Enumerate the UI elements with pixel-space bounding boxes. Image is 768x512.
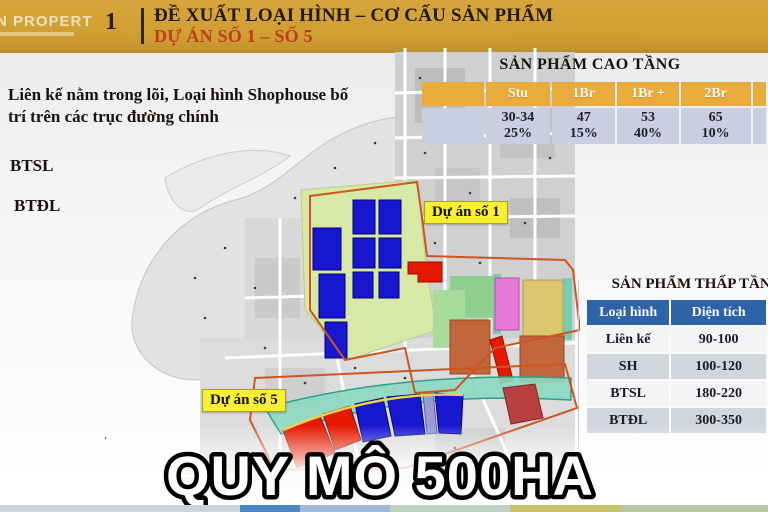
high-rise-cell-empty	[422, 108, 484, 144]
scale-caption-text: QUY MÔ 500HA	[166, 444, 594, 507]
low-rise-header-row: Loại hình Diện tích	[587, 300, 766, 325]
sliver-segment	[510, 505, 620, 512]
high-rise-data-row: 30-34 25% 47 15% 53 40% 65 10%	[422, 108, 766, 144]
section-number: 1	[96, 9, 126, 36]
low-rise-table: Loại hình Diện tích Liên kế 90-100 SH 10…	[585, 298, 768, 435]
1brplus-ratio: 40%	[618, 126, 677, 142]
note-btdl: BTĐL	[14, 196, 60, 216]
slide-title: ĐỀ XUẤT LOẠI HÌNH – CƠ CẤU SẢN PHẨM	[154, 5, 553, 26]
high-rise-table-title: SẢN PHẨM CAO TẦNG	[420, 56, 760, 74]
1brplus-area: 53	[618, 110, 677, 126]
high-rise-col-2br: 2Br	[681, 82, 751, 106]
sliver-segment	[300, 505, 390, 512]
low-rise-col-type: Loại hình	[587, 300, 669, 325]
logo-text: N PROPERTY	[0, 13, 92, 30]
high-rise-table: Stu 1Br 1Br + 2Br 30-34 25% 47 15% 53 40…	[420, 80, 768, 146]
scale-caption: QUY MÔ 500HA	[130, 440, 630, 510]
high-rise-col-1br: 1Br	[552, 82, 615, 106]
sliver-segment	[240, 505, 300, 512]
label-project-1: Dự án số 1	[424, 201, 508, 224]
high-rise-header-row: Stu 1Br 1Br + 2Br	[422, 82, 766, 106]
low-rise-table-title: SẢN PHẨM THẤP TẦNG	[585, 276, 768, 293]
high-rise-col-cut	[753, 82, 766, 106]
btsl-type: BTSL	[587, 381, 669, 406]
high-rise-cell-1br: 47 15%	[552, 108, 615, 144]
sliver-segment	[390, 505, 510, 512]
note-btsl: BTSL	[10, 156, 53, 176]
header-divider	[141, 8, 144, 44]
1br-area: 47	[553, 110, 614, 126]
1br-ratio: 15%	[553, 126, 614, 142]
sliver-segment	[0, 505, 240, 512]
lienke-type: Liên kế	[587, 327, 669, 352]
low-rise-col-area: Diện tích	[671, 300, 766, 325]
sh-area: 100-120	[671, 354, 766, 379]
lienke-area: 90-100	[671, 327, 766, 352]
2br-area: 65	[682, 110, 750, 126]
high-rise-cell-stu: 30-34 25%	[486, 108, 550, 144]
high-rise-cell-2br: 65 10%	[681, 108, 751, 144]
header-titles: ĐỀ XUẤT LOẠI HÌNH – CƠ CẤU SẢN PHẨM DỰ Á…	[154, 5, 553, 46]
low-rise-row-btsl: BTSL 180-220	[587, 381, 766, 406]
high-rise-col-empty	[422, 82, 484, 106]
next-slide-sliver	[0, 505, 768, 512]
company-logo: N PROPERTY	[0, 13, 92, 36]
header-band: N PROPERTY 1 ĐỀ XUẤT LOẠI HÌNH – CƠ CẤU …	[0, 0, 768, 53]
label-project-5: Dự án số 5	[202, 389, 286, 412]
high-rise-col-stu: Stu	[486, 82, 550, 106]
stu-ratio: 25%	[487, 126, 549, 142]
low-rise-row-sh: SH 100-120	[587, 354, 766, 379]
btsl-area: 180-220	[671, 381, 766, 406]
low-rise-row-lienke: Liên kế 90-100	[587, 327, 766, 352]
stu-area: 30-34	[487, 110, 549, 126]
slide-subtitle: DỰ ÁN SỐ 1 – SỐ 5	[154, 26, 553, 46]
high-rise-col-1brplus: 1Br +	[617, 82, 678, 106]
logo-tagline-bar	[0, 32, 74, 36]
2br-ratio: 10%	[682, 126, 750, 142]
presentation-slide: N PROPERTY 1 ĐỀ XUẤT LOẠI HÌNH – CƠ CẤU …	[0, 0, 768, 512]
sliver-segment	[620, 505, 768, 512]
sh-type: SH	[587, 354, 669, 379]
high-rise-cell-1brplus: 53 40%	[617, 108, 678, 144]
high-rise-cell-cut	[753, 108, 766, 144]
